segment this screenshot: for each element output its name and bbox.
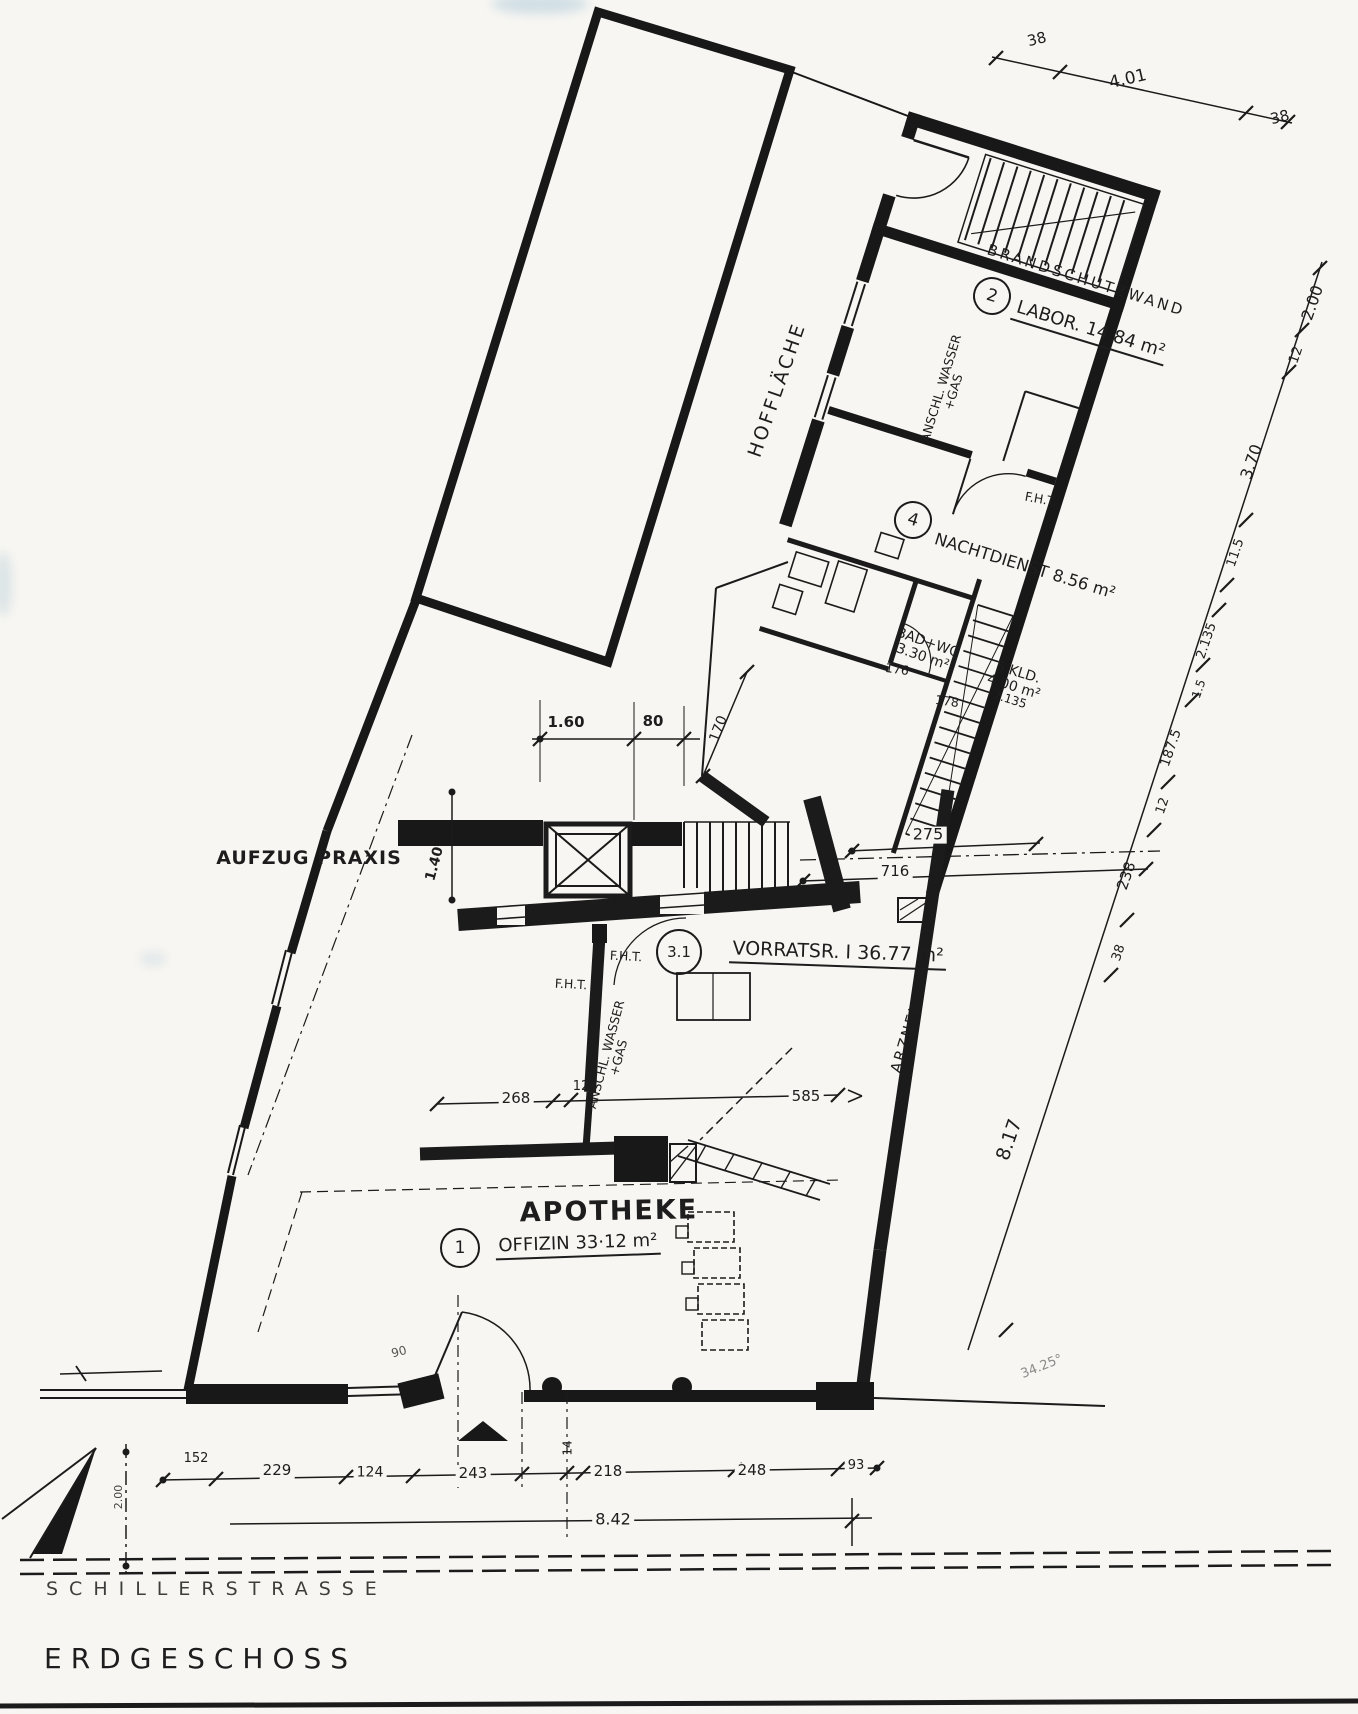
dim-80: 80 [643, 714, 664, 730]
fht-label-3: F.H.T. [554, 977, 587, 992]
courtyard-outline [416, 12, 908, 662]
dim-243: 243 [456, 1466, 491, 1482]
street-label: SCHILLERSTRASSE [46, 1578, 388, 1600]
dim-275: 275 [910, 827, 947, 844]
dim-152: 152 [181, 1452, 212, 1466]
dim-176: 176 [884, 661, 909, 677]
dim-160: 1.60 [547, 715, 584, 731]
dim-124: 124 [354, 1466, 387, 1481]
left-boundary-wall [188, 600, 416, 1390]
plan-title: ERDGESCHOSS [44, 1642, 357, 1675]
dim-585: 585 [789, 1089, 824, 1105]
room-number-vorrat: 3.1 [656, 929, 702, 975]
dim-12-mid: 12 [573, 1080, 590, 1094]
apotheke-title: APOTHEKE [520, 1196, 699, 1227]
dim-268: 268 [499, 1091, 534, 1107]
dim-248: 248 [735, 1463, 770, 1479]
floor-plan-scan: ERDGESCHOSS SCHILLERSTRASSE APOTHEKE 1 O… [0, 0, 1358, 1714]
dim-total-842: 8.42 [592, 1512, 634, 1529]
dim-229: 229 [260, 1463, 295, 1479]
dim-178: 178 [934, 693, 959, 709]
dim-716: 716 [878, 864, 913, 880]
aufzug-praxis-label: AUFZUG PRAXIS [216, 849, 402, 869]
dimension-lines [60, 51, 1327, 1576]
dim-14: 14 [562, 1440, 575, 1455]
dim-left-200: 2.00 [113, 1485, 125, 1510]
fht-label-2: F.H.T. [609, 949, 642, 964]
dim-218: 218 [591, 1464, 626, 1480]
dim-93: 93 [845, 1459, 868, 1473]
room-number-offizin: 1 [440, 1228, 480, 1268]
